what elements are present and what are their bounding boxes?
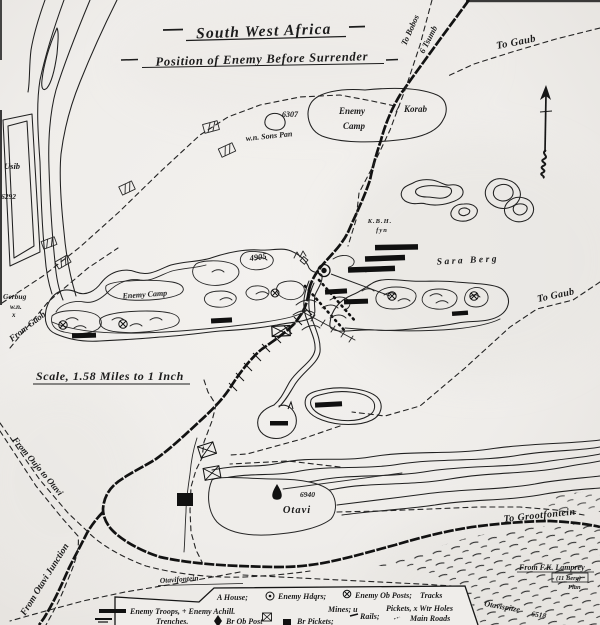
svg-text:Enemy Hdqrs;: Enemy Hdqrs; bbox=[277, 592, 327, 601]
svg-text:Pickets, x Wtr Holes: Pickets, x Wtr Holes bbox=[386, 604, 453, 613]
svg-text:6307: 6307 bbox=[282, 110, 299, 119]
svg-text:6292: 6292 bbox=[1, 192, 16, 201]
svg-text:Br Pickets;: Br Pickets; bbox=[296, 617, 334, 625]
svg-text:Br Ob Post: Br Ob Post bbox=[225, 617, 263, 625]
svg-text:Enemy Troops, + Enemy Achill.: Enemy Troops, + Enemy Achill. bbox=[129, 607, 235, 616]
svg-text:Korab: Korab bbox=[403, 104, 428, 114]
svg-text:Mines; u: Mines; u bbox=[327, 605, 358, 614]
svg-text:Enemy Ob Posts;: Enemy Ob Posts; bbox=[354, 591, 412, 600]
svg-text:w.n.: w.n. bbox=[10, 303, 22, 311]
svg-text:Otavi: Otavi bbox=[283, 505, 311, 516]
svg-text:Trenches.: Trenches. bbox=[156, 617, 188, 625]
svg-text:Tracks: Tracks bbox=[420, 591, 442, 600]
svg-text:Rails;: Rails; bbox=[359, 612, 380, 621]
svg-text:Usib: Usib bbox=[4, 161, 20, 171]
svg-text:Gerbug: Gerbug bbox=[3, 292, 27, 301]
svg-text:fyn: fyn bbox=[376, 227, 388, 234]
svg-text:From F.K. Lamprey: From F.K. Lamprey bbox=[518, 563, 585, 572]
svg-text:Enemy: Enemy bbox=[338, 106, 366, 116]
svg-text:(11 Berg): (11 Berg) bbox=[556, 575, 581, 582]
svg-text:6940: 6940 bbox=[300, 490, 315, 499]
svg-text:Main Roads: Main Roads bbox=[409, 614, 450, 623]
svg-text:Plan: Plan bbox=[568, 584, 581, 591]
svg-text:x: x bbox=[11, 311, 16, 319]
svg-text:Camp: Camp bbox=[343, 121, 366, 131]
svg-text:K.B.H.: K.B.H. bbox=[367, 218, 393, 225]
svg-text:Scale, 1.58 Miles to 1 Inch: Scale, 1.58 Miles to 1 Inch bbox=[36, 369, 184, 383]
svg-text:A House;: A House; bbox=[216, 593, 248, 602]
